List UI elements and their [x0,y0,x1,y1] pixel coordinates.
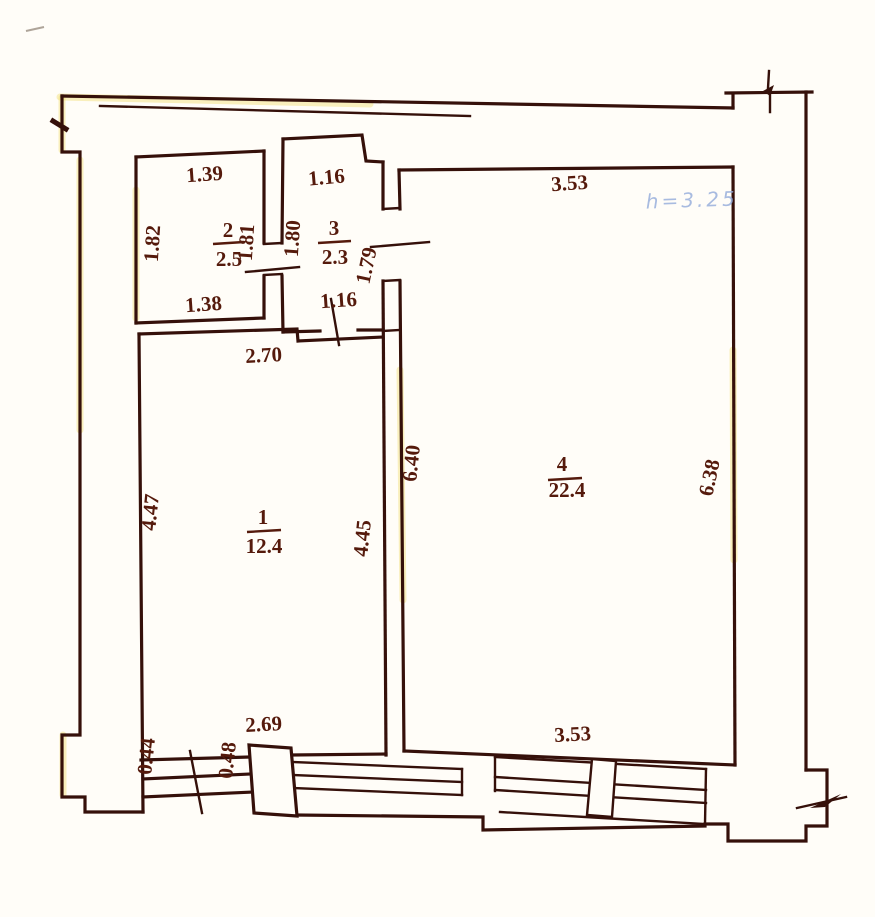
room-2-dim-left: 1.82 [139,224,166,262]
balcony-door-block [249,745,297,816]
room-2-number: 2 [223,218,234,242]
room-2-dim-top: 1.39 [185,161,223,188]
room-4-dim-left: 6.40 [397,444,425,483]
room-1-dim-right: 4.45 [348,519,376,558]
room-3-number: 3 [329,216,340,240]
room-1-dim-bottom: 2.69 [245,711,283,737]
room-3-dim-left: 1.80 [279,219,306,257]
room-2-area: 2.5 [216,247,242,271]
room-1-area: 12.4 [246,534,283,558]
room-4-dim-top: 3.53 [550,170,588,197]
floor-plan-page: 1.39 1.82 1.81 1.38 2 2.5 1.16 1.80 1.79… [0,0,875,917]
floor-plan-drawing: 1.39 1.82 1.81 1.38 2 2.5 1.16 1.80 1.79… [0,0,875,917]
room-3-dim-bottom: 1.16 [319,287,357,314]
room-2-dim-bottom: 1.38 [184,291,222,318]
room-3-area: 2.3 [322,245,348,269]
room-4-dim-bottom: 3.53 [554,721,592,747]
room-1-number: 1 [258,505,269,529]
room-1-dim-top: 2.70 [245,342,283,368]
room-1-dim-left: 4.47 [136,493,164,532]
entry-dim-left: 0.44 [132,736,160,776]
window-pier-block [587,759,616,817]
room-3-dim-top: 1.16 [307,163,346,190]
paper-background [0,0,875,917]
room-4-area: 22.4 [549,478,586,502]
entry-dim-right: 0.48 [213,741,241,780]
room-4-number: 4 [557,452,568,476]
ceiling-height-note: h=3.25 [645,186,738,213]
